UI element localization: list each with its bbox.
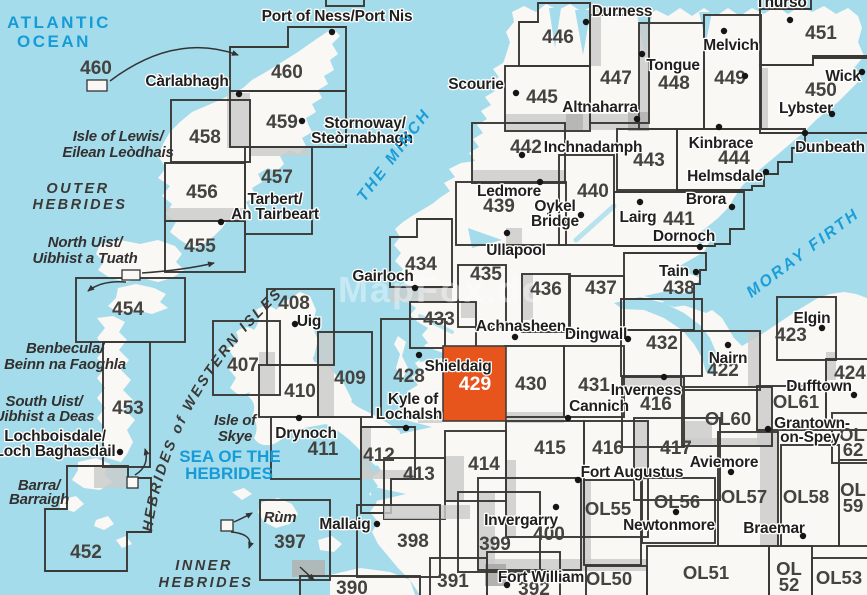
svg-text:415: 415 bbox=[534, 438, 566, 459]
svg-text:Rùm: Rùm bbox=[264, 509, 297, 526]
svg-text:Uig: Uig bbox=[297, 313, 321, 330]
svg-text:Dingwall: Dingwall bbox=[565, 326, 627, 343]
svg-text:452: 452 bbox=[70, 542, 102, 563]
svg-text:Aviemore: Aviemore bbox=[690, 454, 759, 471]
svg-text:Drynoch: Drynoch bbox=[275, 425, 336, 442]
svg-text:Isle of Lewis/: Isle of Lewis/ bbox=[73, 128, 166, 145]
svg-text:Mallaig: Mallaig bbox=[319, 516, 370, 533]
svg-text:OL56: OL56 bbox=[654, 491, 700, 512]
svg-text:410: 410 bbox=[284, 381, 316, 402]
svg-text:Cannich: Cannich bbox=[569, 398, 629, 415]
svg-text:399: 399 bbox=[479, 534, 511, 555]
svg-text:Ledmore: Ledmore bbox=[477, 183, 542, 200]
svg-text:Uibhist a Deas: Uibhist a Deas bbox=[0, 408, 94, 425]
svg-text:447: 447 bbox=[600, 68, 632, 89]
svg-text:431: 431 bbox=[578, 375, 610, 396]
svg-text:460: 460 bbox=[271, 62, 303, 83]
svg-text:437: 437 bbox=[585, 278, 617, 299]
svg-text:390: 390 bbox=[336, 578, 368, 595]
svg-text:459: 459 bbox=[266, 112, 298, 133]
svg-text:Wick: Wick bbox=[825, 68, 861, 85]
svg-text:Inchnadamph: Inchnadamph bbox=[544, 139, 643, 156]
svg-text:391: 391 bbox=[437, 571, 469, 592]
svg-text:438: 438 bbox=[663, 278, 695, 299]
svg-text:Thurso: Thurso bbox=[755, 0, 806, 11]
svg-text:Lairg: Lairg bbox=[620, 209, 657, 226]
svg-text:An Tairbeart: An Tairbeart bbox=[231, 206, 319, 223]
svg-text:398: 398 bbox=[397, 531, 429, 552]
svg-text:429: 429 bbox=[459, 373, 492, 395]
svg-text:HEBRIDES: HEBRIDES bbox=[185, 464, 273, 483]
svg-text:Altnaharra: Altnaharra bbox=[562, 99, 638, 116]
svg-text:Benbecula/: Benbecula/ bbox=[26, 340, 106, 357]
svg-text:409: 409 bbox=[334, 368, 366, 389]
svg-text:Elgin: Elgin bbox=[794, 310, 831, 327]
svg-text:OL55: OL55 bbox=[585, 498, 631, 519]
svg-text:407: 407 bbox=[227, 355, 259, 376]
svg-text:441: 441 bbox=[663, 209, 695, 230]
svg-text:445: 445 bbox=[526, 87, 558, 108]
svg-text:OCEAN: OCEAN bbox=[17, 32, 91, 51]
svg-text:OL53: OL53 bbox=[816, 567, 862, 588]
svg-text:Loch Baghasdail: Loch Baghasdail bbox=[0, 443, 116, 460]
svg-text:449: 449 bbox=[714, 68, 746, 89]
svg-text:Ullapool: Ullapool bbox=[486, 242, 546, 259]
svg-text:Dufftown: Dufftown bbox=[786, 378, 852, 395]
svg-text:456: 456 bbox=[186, 182, 218, 203]
svg-text:OL57: OL57 bbox=[721, 486, 767, 507]
svg-text:428: 428 bbox=[393, 366, 425, 387]
svg-text:Kinbrace: Kinbrace bbox=[689, 135, 754, 152]
svg-text:OL51: OL51 bbox=[683, 562, 729, 583]
svg-text:453: 453 bbox=[112, 398, 144, 419]
svg-text:INNER: INNER bbox=[175, 558, 233, 574]
svg-text:414: 414 bbox=[468, 454, 500, 475]
svg-text:North Uist/: North Uist/ bbox=[48, 234, 124, 251]
svg-text:436: 436 bbox=[530, 279, 562, 300]
svg-text:Newtonmore: Newtonmore bbox=[623, 517, 715, 534]
svg-text:448: 448 bbox=[658, 73, 690, 94]
svg-text:52: 52 bbox=[779, 574, 800, 595]
svg-text:OL58: OL58 bbox=[783, 486, 829, 507]
svg-text:Tain: Tain bbox=[659, 263, 689, 280]
svg-text:Melvich: Melvich bbox=[703, 37, 758, 54]
svg-text:412: 412 bbox=[363, 445, 395, 466]
svg-text:440: 440 bbox=[577, 181, 609, 202]
svg-text:455: 455 bbox=[184, 236, 216, 257]
svg-text:442: 442 bbox=[510, 137, 542, 158]
svg-text:Port of Ness/Port Nis: Port of Ness/Port Nis bbox=[262, 8, 413, 25]
svg-text:ATLANTIC: ATLANTIC bbox=[7, 13, 111, 32]
svg-text:Helmsdale: Helmsdale bbox=[687, 168, 763, 185]
svg-text:Lochalsh: Lochalsh bbox=[376, 406, 442, 423]
svg-text:Invergarry: Invergarry bbox=[484, 512, 558, 529]
svg-text:Dornoch: Dornoch bbox=[653, 228, 715, 245]
svg-text:430: 430 bbox=[515, 374, 547, 395]
svg-text:397: 397 bbox=[274, 532, 306, 553]
svg-text:Skye: Skye bbox=[218, 428, 252, 445]
svg-text:416: 416 bbox=[592, 438, 624, 459]
svg-text:Brora: Brora bbox=[686, 191, 727, 208]
svg-text:Lybster: Lybster bbox=[779, 100, 833, 117]
svg-text:Braemar: Braemar bbox=[743, 520, 805, 537]
svg-text:413: 413 bbox=[403, 464, 435, 485]
svg-text:446: 446 bbox=[542, 27, 574, 48]
svg-text:Càrlabhagh: Càrlabhagh bbox=[145, 73, 228, 90]
svg-text:59: 59 bbox=[843, 495, 864, 516]
svg-text:OL50: OL50 bbox=[586, 568, 632, 589]
svg-text:62: 62 bbox=[843, 439, 864, 460]
svg-text:OUTER: OUTER bbox=[46, 181, 109, 197]
svg-text:454: 454 bbox=[112, 299, 144, 320]
svg-text:433: 433 bbox=[423, 309, 455, 330]
svg-text:Achnasheen: Achnasheen bbox=[476, 318, 566, 335]
svg-text:Barraigh: Barraigh bbox=[9, 491, 69, 508]
svg-text:Gairloch: Gairloch bbox=[352, 268, 413, 285]
svg-text:411: 411 bbox=[308, 439, 339, 460]
svg-text:460: 460 bbox=[80, 58, 112, 79]
svg-text:457: 457 bbox=[261, 167, 293, 188]
svg-text:Isle of: Isle of bbox=[214, 412, 258, 429]
svg-text:Uibhist a Tuath: Uibhist a Tuath bbox=[32, 250, 137, 267]
svg-text:Beinn na Faoghla: Beinn na Faoghla bbox=[4, 356, 126, 373]
svg-text:417: 417 bbox=[660, 438, 692, 459]
svg-text:451: 451 bbox=[805, 23, 837, 44]
svg-text:Bridge: Bridge bbox=[531, 213, 579, 230]
svg-text:Scourie: Scourie bbox=[448, 76, 504, 93]
svg-text:OL60: OL60 bbox=[705, 408, 751, 429]
svg-text:423: 423 bbox=[775, 325, 807, 346]
svg-text:HEBRIDES: HEBRIDES bbox=[33, 197, 128, 213]
svg-text:Shieldaig: Shieldaig bbox=[424, 358, 491, 375]
svg-text:Nairn: Nairn bbox=[709, 350, 748, 367]
svg-text:Dunbeath: Dunbeath bbox=[795, 139, 865, 156]
svg-text:435: 435 bbox=[470, 264, 502, 285]
svg-text:Durness: Durness bbox=[592, 3, 653, 20]
svg-text:432: 432 bbox=[646, 333, 678, 354]
svg-text:Fort Augustus: Fort Augustus bbox=[581, 464, 684, 481]
svg-text:on-Spey: on-Spey bbox=[780, 429, 840, 446]
svg-text:458: 458 bbox=[189, 127, 221, 148]
svg-text:HEBRIDES: HEBRIDES bbox=[159, 575, 254, 591]
svg-text:Eilean Leòdhais: Eilean Leòdhais bbox=[62, 144, 173, 161]
svg-text:Tongue: Tongue bbox=[646, 57, 700, 74]
svg-text:Fort William: Fort William bbox=[498, 569, 584, 586]
svg-text:Inverness: Inverness bbox=[611, 382, 682, 399]
